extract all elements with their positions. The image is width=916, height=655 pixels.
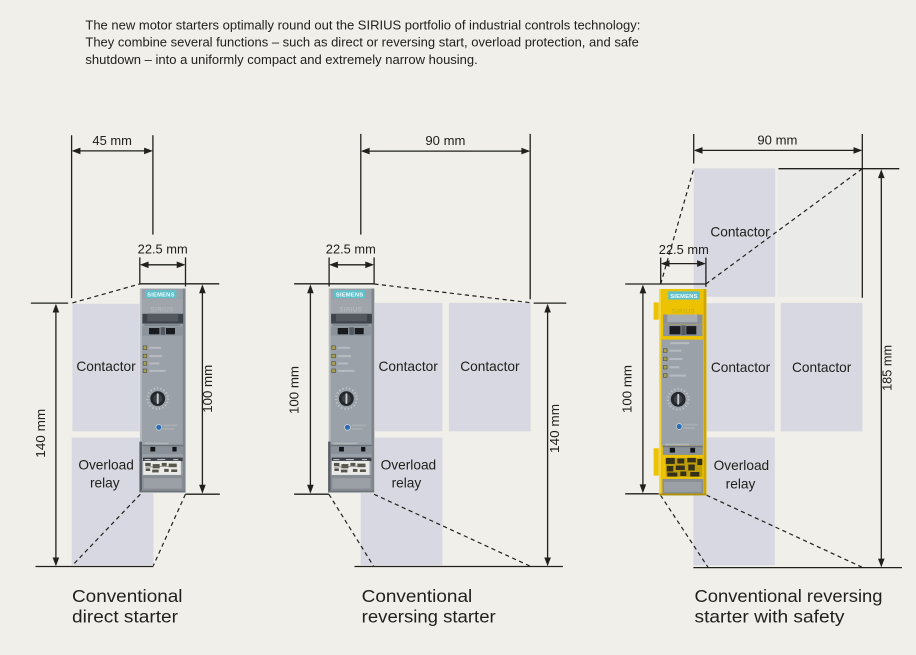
svg-text:Contactor: Contactor	[792, 360, 852, 375]
svg-text:Contactor: Contactor	[460, 359, 520, 374]
svg-text:185 mm: 185 mm	[880, 345, 894, 391]
svg-text:relay: relay	[90, 476, 120, 491]
svg-text:22.5 mm: 22.5 mm	[659, 243, 709, 257]
svg-text:100 mm: 100 mm	[288, 366, 302, 414]
svg-text:Contactor: Contactor	[710, 224, 770, 239]
svg-text:22.5 mm: 22.5 mm	[138, 243, 188, 257]
svg-text:starter with safety: starter with safety	[695, 607, 845, 627]
svg-text:100 mm: 100 mm	[201, 365, 215, 413]
svg-text:140 mm: 140 mm	[548, 404, 562, 453]
svg-text:90 mm: 90 mm	[425, 134, 465, 148]
svg-text:Conventional: Conventional	[72, 586, 183, 606]
svg-text:90 mm: 90 mm	[757, 133, 797, 147]
svg-text:Overload: Overload	[714, 458, 770, 473]
svg-text:They combine several functions: They combine several functions – such as…	[85, 35, 639, 50]
svg-text:direct starter: direct starter	[72, 607, 178, 627]
svg-text:Contactor: Contactor	[711, 360, 771, 375]
svg-text:shutdown – into a uniformly co: shutdown – into a uniformly compact and …	[85, 52, 477, 67]
svg-text:Contactor: Contactor	[379, 359, 439, 374]
svg-text:The new motor starters optimal: The new motor starters optimally round o…	[85, 18, 640, 33]
svg-text:Overload: Overload	[381, 457, 437, 472]
svg-text:100 mm: 100 mm	[621, 365, 635, 413]
svg-text:45 mm: 45 mm	[92, 134, 132, 148]
svg-text:Conventional: Conventional	[362, 586, 473, 606]
svg-text:Conventional reversing: Conventional reversing	[695, 586, 883, 606]
svg-text:relay: relay	[392, 475, 422, 490]
svg-text:reversing starter: reversing starter	[362, 607, 496, 627]
svg-text:22.5 mm: 22.5 mm	[326, 243, 376, 257]
svg-text:140 mm: 140 mm	[34, 409, 48, 458]
svg-text:Contactor: Contactor	[76, 359, 136, 374]
svg-text:Overload: Overload	[78, 458, 134, 473]
svg-text:relay: relay	[726, 476, 756, 491]
